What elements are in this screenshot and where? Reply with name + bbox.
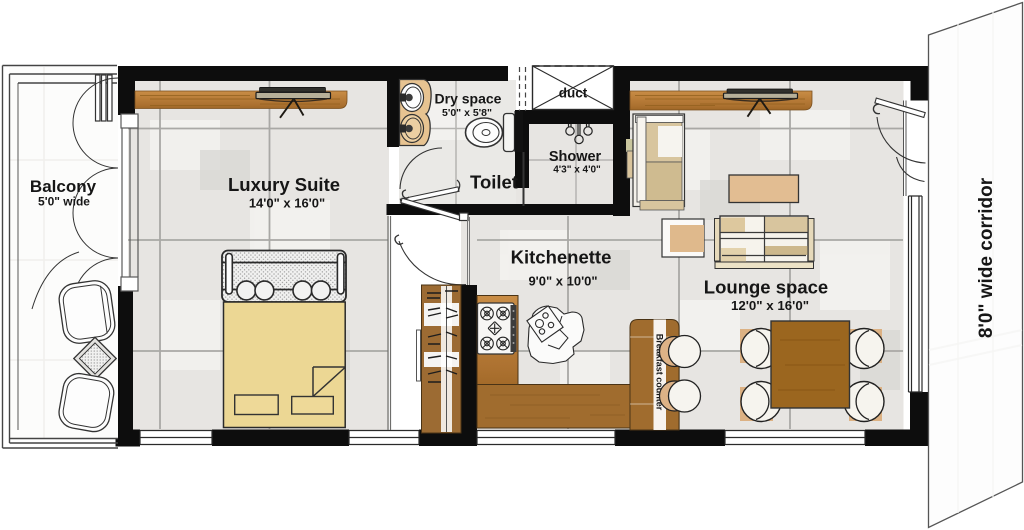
svg-text:Toilet: Toilet xyxy=(470,172,518,193)
svg-text:5'0" x 5'8": 5'0" x 5'8" xyxy=(442,107,492,119)
svg-text:12'0" x 16'0": 12'0" x 16'0" xyxy=(731,298,809,313)
svg-text:duct: duct xyxy=(559,86,588,101)
svg-text:14'0" x 16'0": 14'0" x 16'0" xyxy=(249,196,325,211)
svg-text:Kitchenette: Kitchenette xyxy=(511,247,612,268)
svg-text:5'0" wide: 5'0" wide xyxy=(38,195,90,209)
svg-text:8'0" wide corridor: 8'0" wide corridor xyxy=(976,177,997,338)
svg-text:Balcony: Balcony xyxy=(30,177,97,196)
svg-text:Lounge space: Lounge space xyxy=(704,276,828,297)
svg-text:9'0" x 10'0": 9'0" x 10'0" xyxy=(528,274,597,289)
svg-text:Shower: Shower xyxy=(549,149,602,165)
svg-text:4'3" x 4'0": 4'3" x 4'0" xyxy=(553,165,601,176)
svg-text:Dry space: Dry space xyxy=(435,91,502,107)
svg-text:Luxury Suite: Luxury Suite xyxy=(228,174,340,195)
